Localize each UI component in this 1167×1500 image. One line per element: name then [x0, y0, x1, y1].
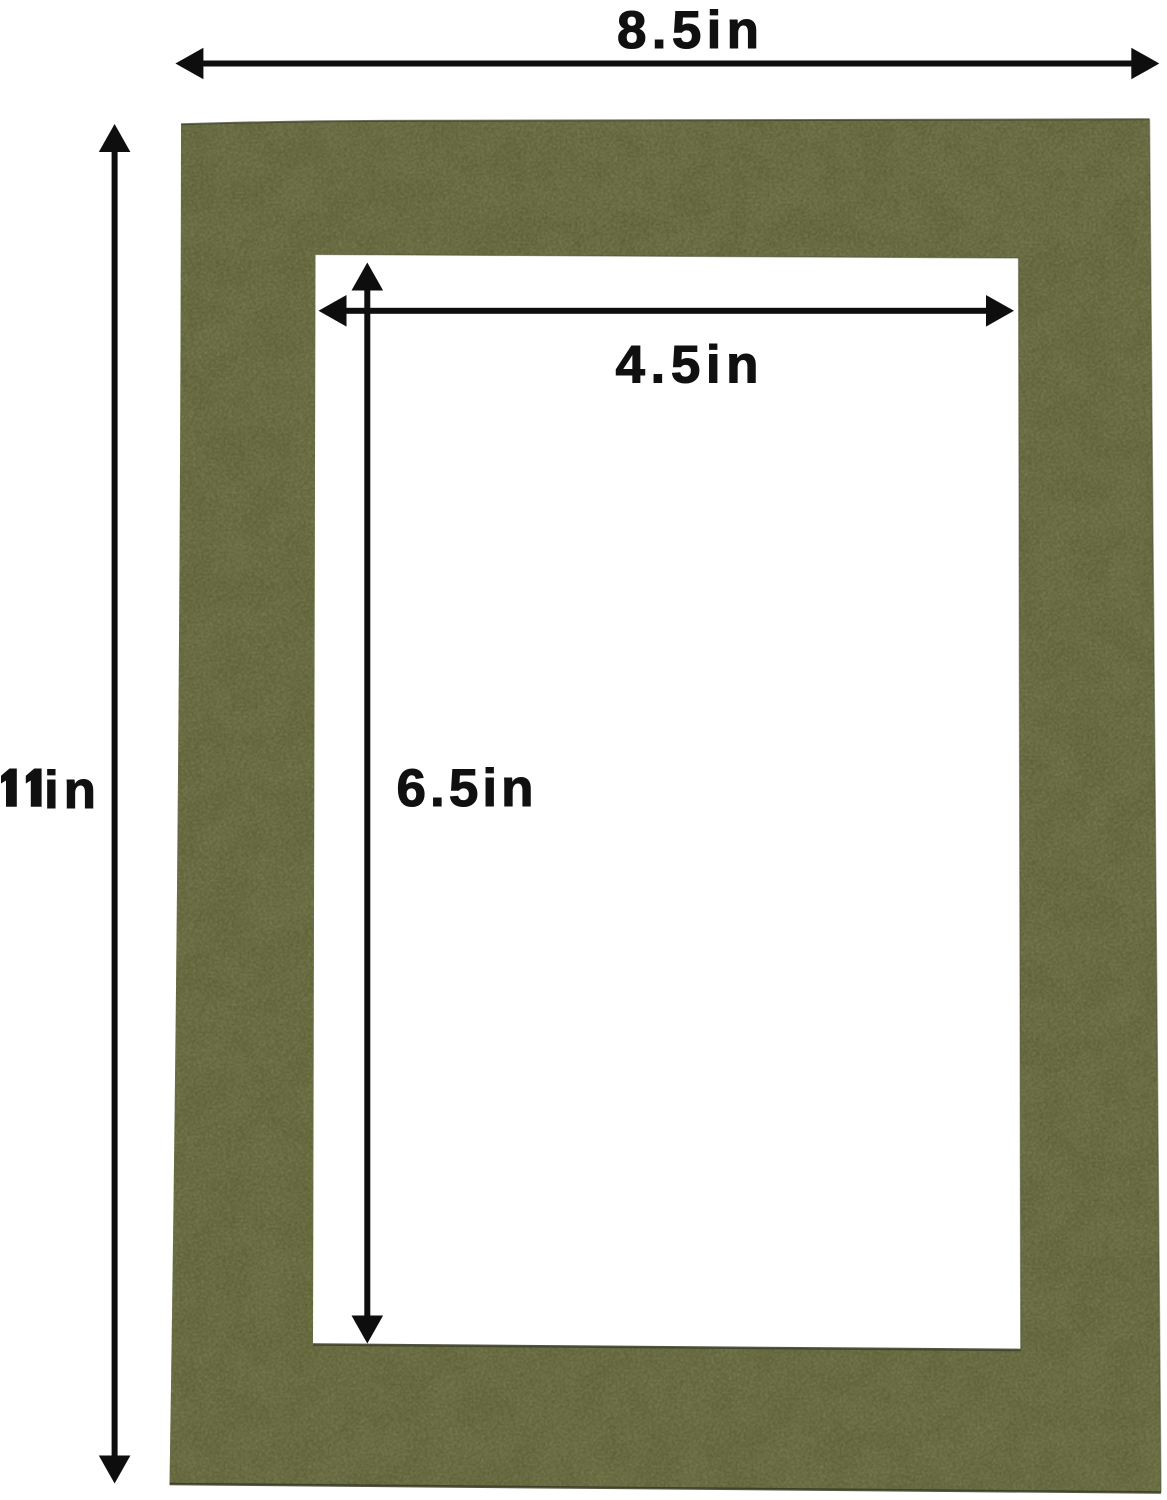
svg-text:6.5in: 6.5in — [397, 759, 534, 818]
svg-text:4.5in: 4.5in — [616, 336, 759, 395]
svg-text:in: in — [44, 761, 96, 820]
svg-text:8.5in: 8.5in — [617, 1, 759, 60]
